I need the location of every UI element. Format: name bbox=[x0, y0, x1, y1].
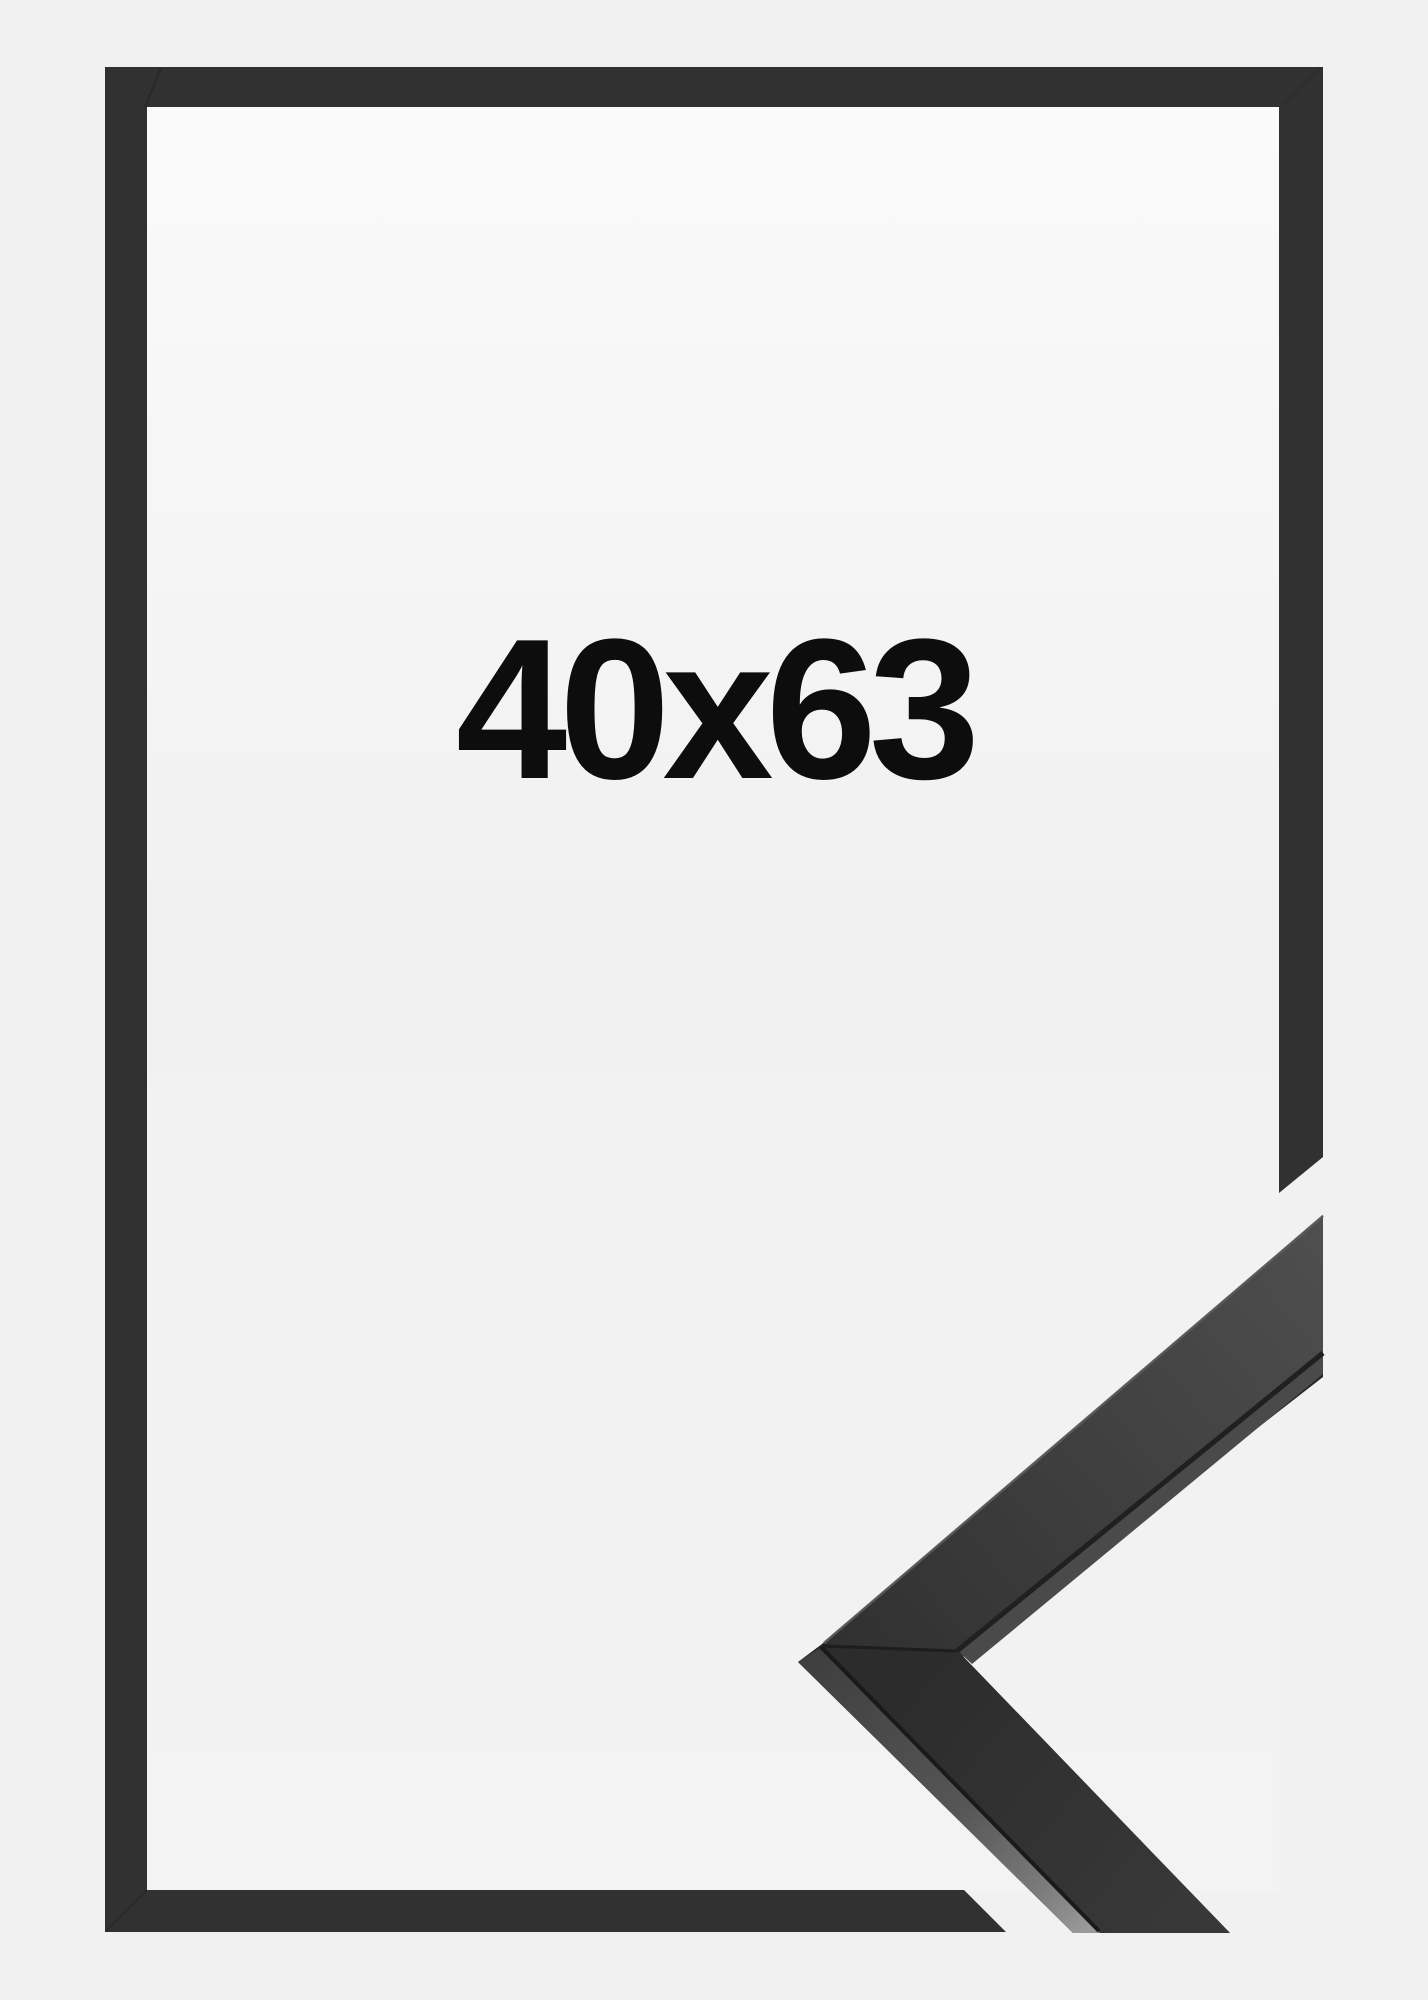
size-label: 40x63 bbox=[456, 598, 973, 821]
product-photo-canvas: 40x63 bbox=[0, 0, 1428, 2000]
product-photo: 40x63 bbox=[0, 0, 1428, 2000]
frame-inner-area bbox=[147, 107, 1279, 1890]
